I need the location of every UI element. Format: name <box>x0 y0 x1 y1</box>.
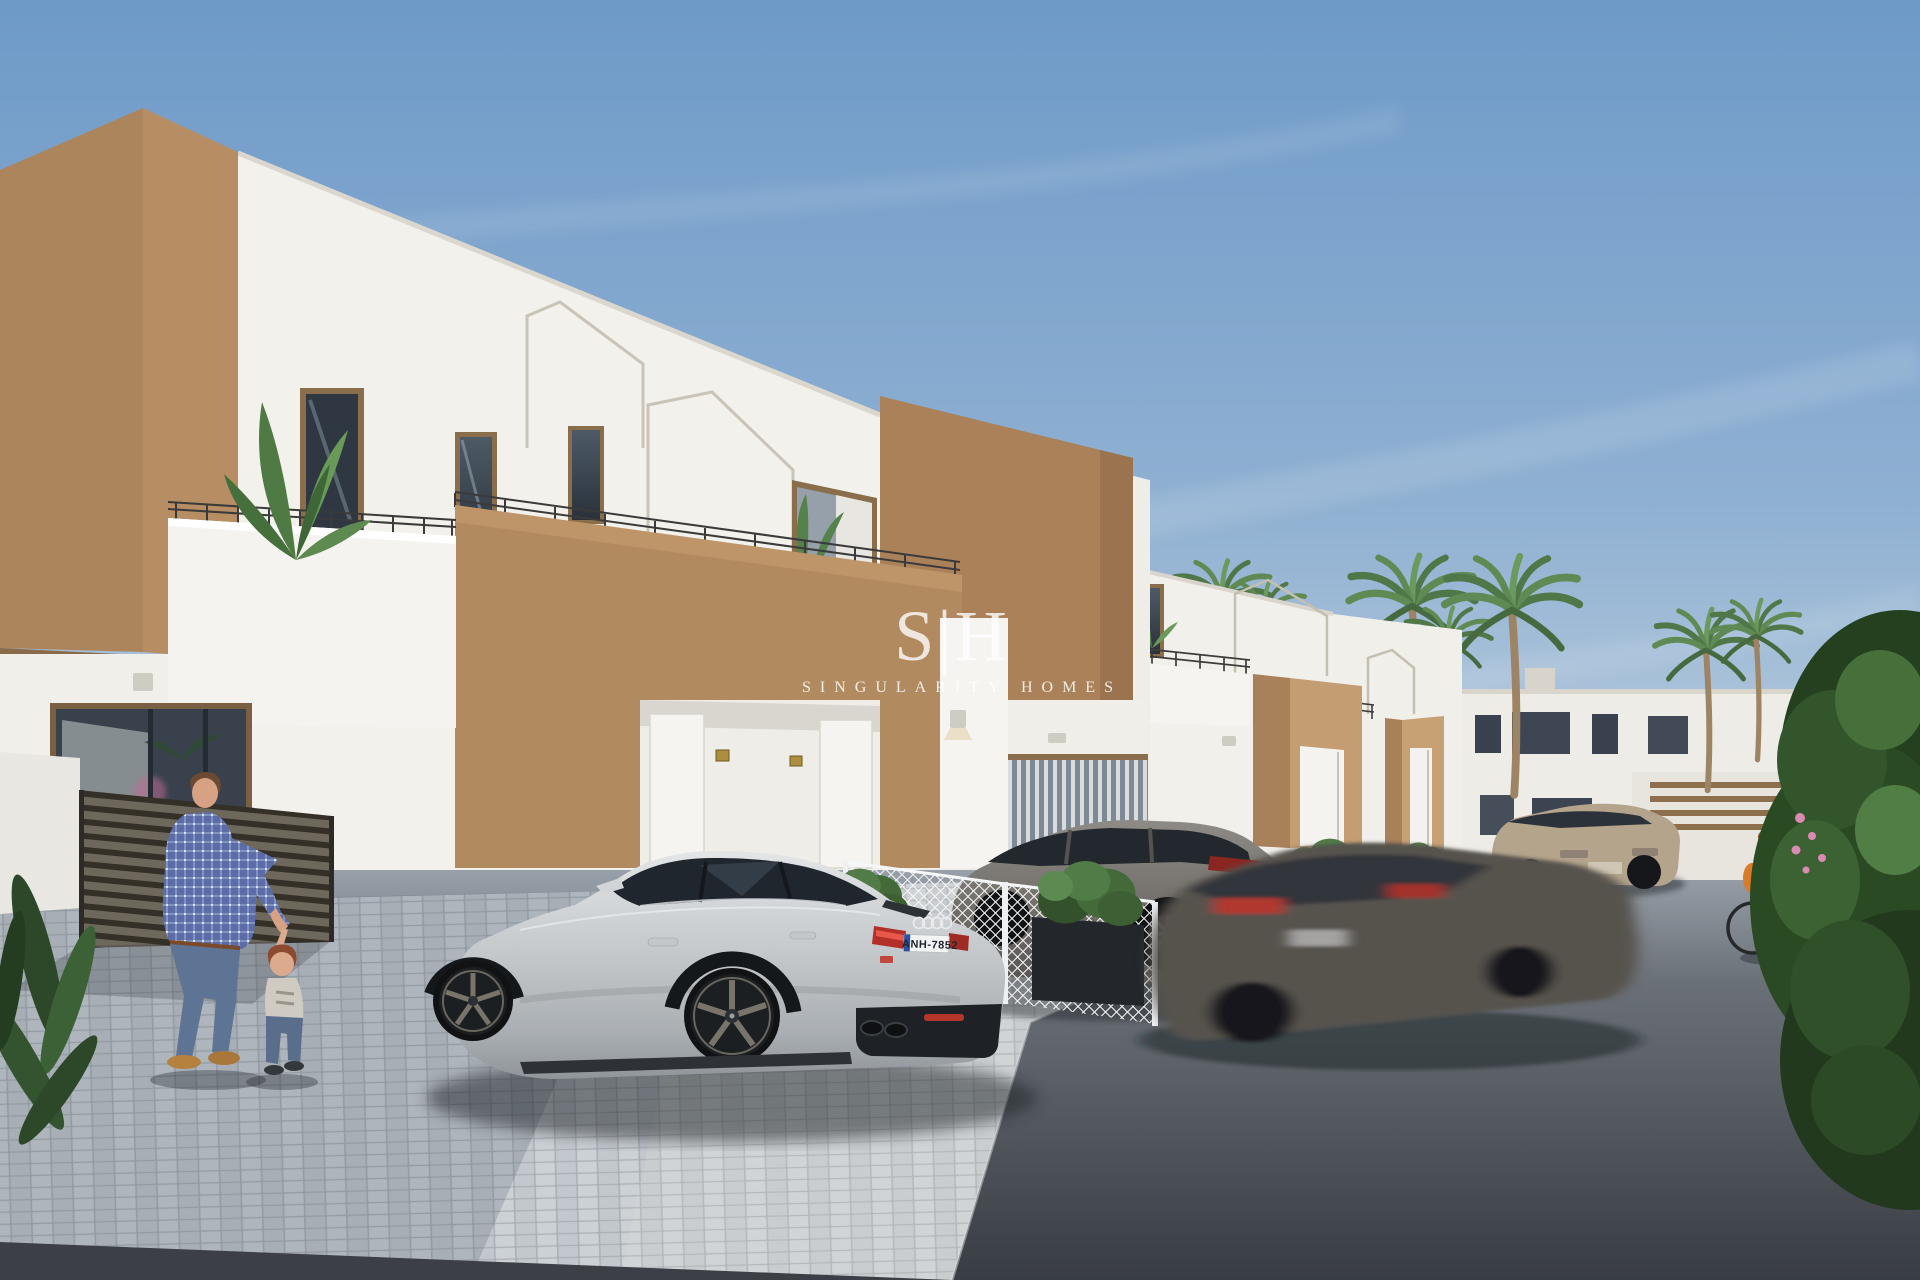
wall-lantern <box>133 673 153 691</box>
house-1-brown-left-face <box>0 108 143 652</box>
rs-badge <box>880 956 893 963</box>
moving-sedan <box>1140 843 1640 1070</box>
garage-recess <box>640 700 880 868</box>
rear-fog-light <box>924 1014 964 1021</box>
audi-door-handle <box>648 938 678 946</box>
wall-lantern <box>1222 736 1236 746</box>
license-plate-text: ANH-7852 <box>902 938 958 952</box>
man-shoe <box>208 1051 240 1065</box>
watermark-logo: S|H <box>894 596 1009 676</box>
toddler-head <box>270 952 294 976</box>
watermark-name: SINGULARITY HOMES <box>802 679 1122 696</box>
sedan-taillight <box>1214 898 1284 914</box>
house-4-entry-side <box>1385 718 1402 854</box>
house-3-entry-side <box>1253 674 1290 848</box>
toddler-shoe <box>284 1061 304 1071</box>
sedan-taillight <box>1388 884 1444 898</box>
wall-lantern <box>950 710 966 728</box>
garage-door-left <box>650 714 704 868</box>
man-shoe <box>167 1055 201 1069</box>
house-number-plaque <box>790 756 802 766</box>
planter-box <box>1032 917 1144 1006</box>
render-canvas: ANH-7852 <box>0 0 1920 1280</box>
audi-rear-wheel <box>684 968 780 1064</box>
sedan-plate-blur <box>1290 930 1346 946</box>
audi-door-handle <box>790 932 816 939</box>
garage-door-right <box>820 720 872 868</box>
wall-lantern <box>1048 733 1066 743</box>
toddler-shoe <box>264 1065 284 1075</box>
exhaust-tip <box>861 1021 883 1035</box>
exhaust-tip <box>885 1023 907 1037</box>
toddler-shirt <box>265 978 303 1018</box>
audi-front-wheel <box>433 961 513 1041</box>
man-head <box>192 778 218 808</box>
house-number-plaque <box>716 750 729 761</box>
